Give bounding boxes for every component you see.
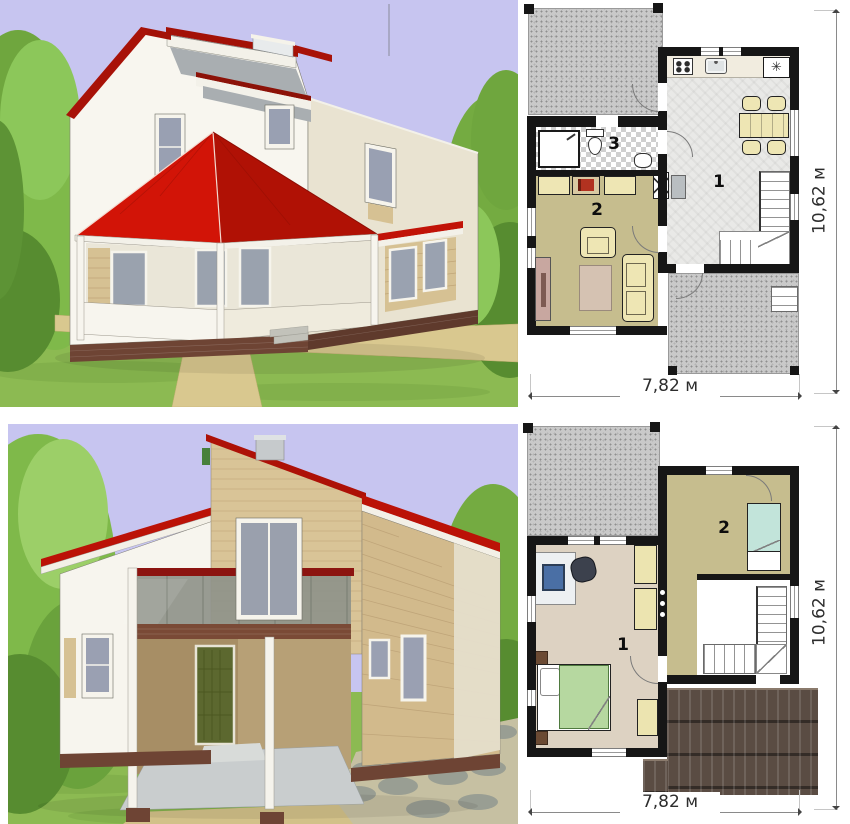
room-label-bath: 3 (602, 134, 626, 154)
right-window (370, 640, 389, 678)
staircase-winder (719, 231, 790, 266)
arrowhead (832, 5, 840, 13)
arrowhead (798, 392, 806, 400)
right-smooth-panel (454, 543, 500, 760)
dining-chair (767, 96, 786, 111)
porch-post (265, 637, 274, 809)
arrowhead (798, 808, 806, 816)
veranda-wood-panel (88, 248, 110, 306)
window (600, 536, 626, 545)
arrowhead (524, 392, 532, 400)
door-opening (676, 264, 704, 273)
side-wood-band (385, 237, 456, 312)
window (706, 466, 732, 475)
door-opening (756, 675, 780, 684)
arrowhead (524, 808, 532, 816)
room-label-bedroom1: 1 (611, 635, 635, 655)
corner-marker (650, 422, 660, 432)
dining-chair (742, 140, 761, 155)
door-opening (658, 226, 667, 252)
snowflake-symbol: ✳ (771, 60, 782, 75)
wardrobe (634, 588, 657, 630)
corner-marker (524, 4, 534, 14)
lower-window (424, 240, 446, 291)
armchair-seat (587, 237, 609, 254)
chimney (256, 438, 284, 460)
roof-vent (202, 448, 210, 465)
veranda-post (77, 236, 84, 340)
left-window (82, 634, 113, 698)
staircase-winder (756, 644, 787, 674)
architectural-sheet: ✳ (0, 0, 850, 824)
pillow (540, 668, 560, 696)
sofa-cushion (626, 263, 646, 287)
wardrobe (634, 545, 657, 584)
desk (533, 552, 576, 605)
dimension-line (836, 10, 837, 394)
chimney-cap (254, 435, 286, 440)
entry-door-opening (658, 83, 667, 111)
rug (579, 265, 612, 311)
sofa-cushion (626, 291, 646, 315)
shelf-unit (538, 176, 570, 195)
bed-foot (747, 551, 781, 571)
first-floor-plan: ✳ (520, 0, 850, 410)
shelf-unit (604, 176, 636, 195)
wall-segment (790, 47, 799, 273)
fireplace-insert (578, 179, 594, 191)
wall-dot (660, 590, 665, 595)
washbasin-icon (634, 153, 652, 168)
wall-segment (527, 536, 667, 545)
render-entrance-view (8, 424, 518, 824)
window (527, 690, 536, 706)
wardrobe (637, 699, 658, 736)
porch-roof-tiles-lower (643, 759, 668, 795)
porch (120, 632, 364, 810)
right-window (402, 636, 425, 700)
window (527, 208, 536, 236)
winder-treads (720, 240, 758, 266)
window (723, 47, 741, 56)
brick-pier (260, 812, 284, 824)
balcony-door (236, 518, 302, 620)
arrowhead (832, 421, 840, 429)
window (790, 110, 799, 156)
window (790, 586, 799, 618)
front-door (196, 646, 234, 744)
wall-segment (527, 536, 536, 757)
winder-line (757, 645, 786, 673)
render-garden-svg (0, 0, 518, 407)
room-label-bedroom2: 2 (712, 518, 736, 538)
left-wood-strip (64, 638, 76, 698)
wall-segment (658, 536, 667, 757)
dining-chair (767, 140, 786, 155)
window (701, 47, 719, 56)
veranda-window (240, 248, 270, 306)
corner-marker (790, 366, 799, 375)
window (592, 748, 626, 757)
exterior-steps (771, 286, 798, 312)
bed-blue (747, 503, 781, 553)
stove-icon (673, 58, 693, 75)
height-dimension-label: 10,62 м (810, 578, 831, 648)
arrowhead (832, 806, 840, 814)
render-entrance-svg (8, 424, 518, 824)
veranda-post (217, 243, 224, 347)
corner-marker (523, 423, 533, 433)
duct-block (671, 175, 686, 199)
upper-window-right (365, 143, 396, 224)
wall-segment (790, 466, 799, 684)
veranda-window (112, 252, 146, 306)
brick-pier (126, 808, 150, 822)
tv-screen (541, 273, 546, 307)
blanket (559, 665, 609, 729)
window (570, 326, 616, 335)
width-dimension-label: 7,82 м (620, 376, 720, 397)
fireplace (572, 176, 600, 195)
room-label-living: 2 (585, 200, 609, 220)
dining-chair (742, 96, 761, 111)
room-label-kitchen: 1 (707, 172, 731, 192)
staircase-upper-run (756, 586, 787, 646)
bedroom2-floor-ext (667, 577, 697, 675)
window (527, 596, 536, 622)
height-dimension-label: 10,62 м (810, 166, 831, 236)
dimension-line (836, 426, 837, 810)
arrowhead (832, 390, 840, 398)
door-opening (658, 130, 667, 154)
render-garden-view (0, 0, 518, 407)
window (790, 194, 799, 220)
staircase-lower-run (703, 644, 756, 674)
upper-window-center (265, 105, 294, 149)
sink-icon (705, 58, 727, 74)
veranda-post (371, 235, 378, 325)
corner-marker (653, 3, 663, 13)
armchair (580, 227, 616, 258)
shower-icon (538, 130, 580, 168)
door-opening (596, 116, 618, 127)
porch-post (128, 568, 137, 808)
wall-dot (660, 601, 665, 606)
lower-window (390, 247, 416, 301)
corner-marker (668, 366, 677, 375)
balcony-brick-band (131, 624, 351, 639)
sofa (622, 254, 654, 322)
blanket-fold (588, 696, 610, 730)
bed-green (537, 664, 611, 731)
fridge-icon: ✳ (763, 57, 790, 78)
staircase-upper-run (759, 171, 790, 233)
balcony-terrace (527, 426, 660, 536)
second-floor-plan: 1 2 7,82 м 10,62 м (520, 414, 850, 824)
wall-dot (660, 612, 665, 617)
width-dimension-label: 7,82 м (620, 792, 720, 813)
window (568, 536, 594, 545)
porch-roof-tiles (667, 688, 818, 795)
shower-head (566, 133, 575, 140)
dining-table (739, 113, 789, 138)
tv-cabinet (535, 257, 551, 321)
door-opening (658, 656, 667, 682)
monitor (542, 564, 565, 591)
wall-segment (697, 574, 790, 580)
